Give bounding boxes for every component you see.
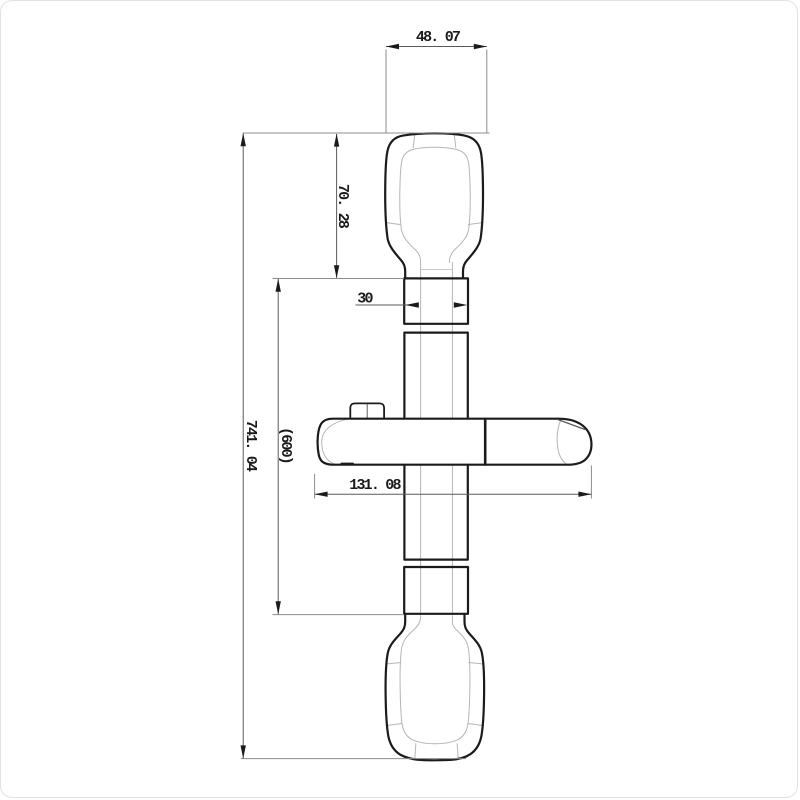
drawing-canvas: 48. 07 741. 04 70. 28 (600) 30 131. 08 <box>0 0 798 798</box>
dimension-slider-length: 131. 08 <box>315 466 592 499</box>
bottom-bracket-inner-contour <box>400 616 470 744</box>
technical-drawing: 48. 07 741. 04 70. 28 (600) 30 131. 08 <box>1 1 799 799</box>
part-slide-rail <box>404 278 468 613</box>
top-bracket-inner-contour <box>400 147 470 262</box>
slider-left-cap-contour <box>322 419 347 464</box>
lower-collar <box>404 567 468 614</box>
dim-top-bracket-height-label: 70. 28 <box>334 184 351 229</box>
slider-body-outline <box>318 419 592 465</box>
dimension-top-bracket-height: 70. 28 <box>334 134 351 279</box>
upper-collar <box>404 278 468 323</box>
upper-tube <box>404 333 467 419</box>
dimension-rail-length: (600) <box>273 279 405 615</box>
dimension-top-width: 48. 07 <box>386 29 487 132</box>
dimension-bar-section-width: 30 <box>356 291 468 308</box>
dim-rail-length-label: (600) <box>277 427 294 463</box>
dim-top-width-label: 48. 07 <box>416 29 460 46</box>
slider-right-cap-contour <box>557 420 566 463</box>
lower-tube <box>404 465 467 560</box>
dim-slider-length-label: 131. 08 <box>349 477 401 494</box>
dim-bar-section-width-label: 30 <box>357 291 373 308</box>
dim-overall-length-label: 741. 04 <box>242 420 259 472</box>
thin-contours <box>322 134 566 760</box>
rail-cylinder-lines <box>421 263 453 615</box>
part-slider <box>318 403 592 464</box>
